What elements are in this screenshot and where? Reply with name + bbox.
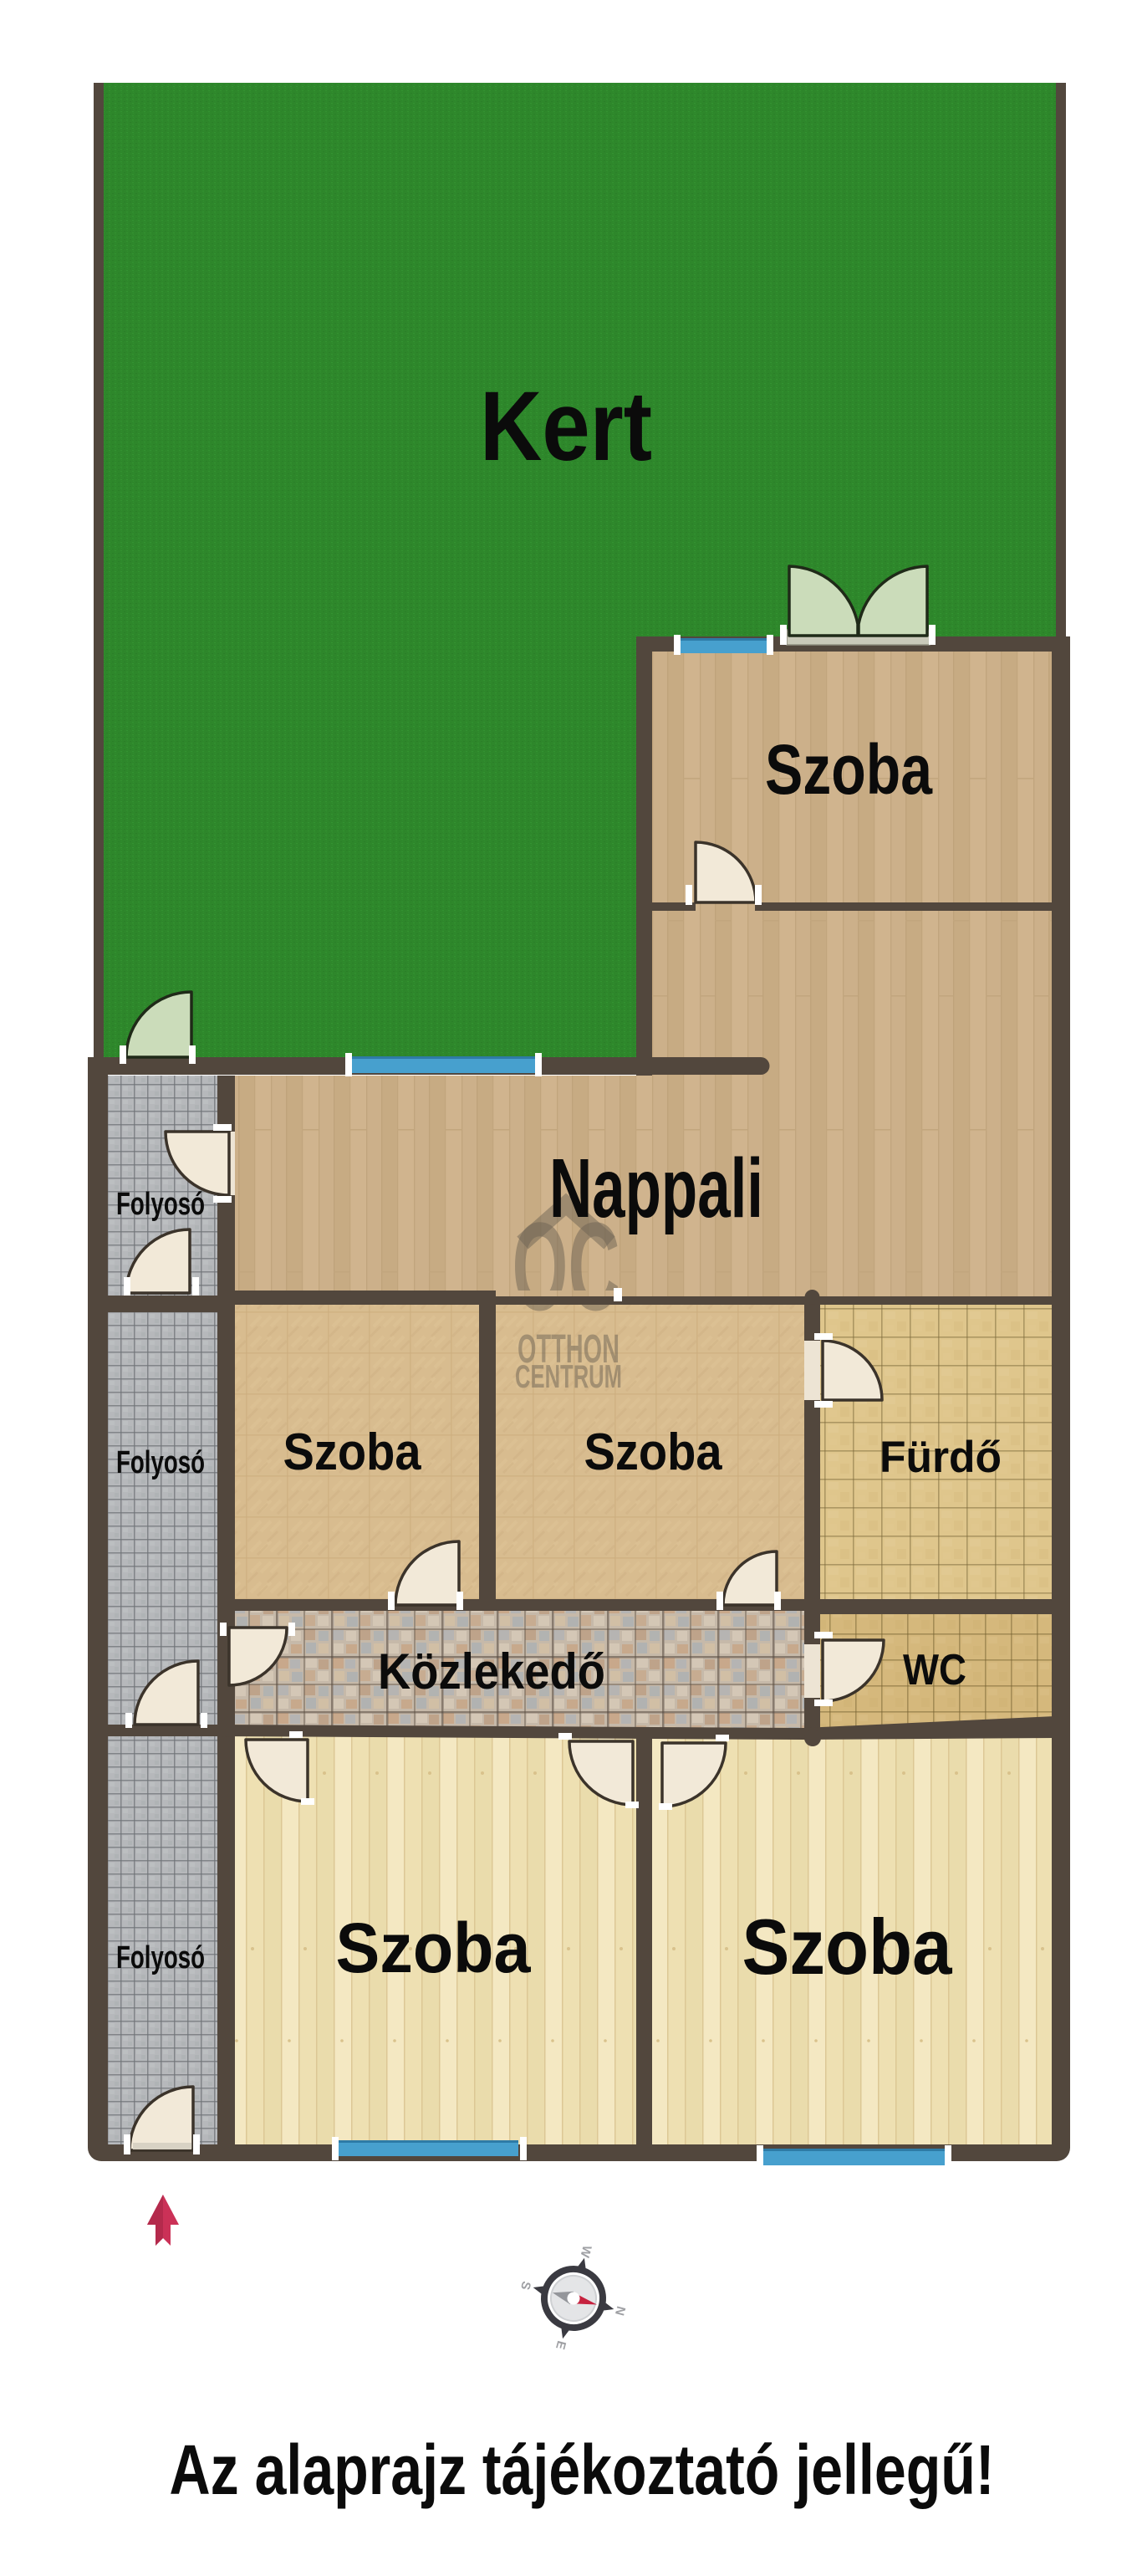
svg-text:N: N [612,2304,628,2317]
svg-text:Szoba: Szoba [584,1423,722,1481]
svg-text:Fürdő: Fürdő [880,1433,1002,1482]
svg-text:Nappali: Nappali [549,1142,763,1235]
svg-text:E: E [553,2339,568,2351]
svg-text:Közlekedő: Közlekedő [378,1643,605,1699]
svg-text:Folyosó: Folyosó [116,1445,205,1480]
svg-text:WC: WC [903,1646,966,1694]
svg-text:Szoba: Szoba [336,1909,532,1987]
svg-text:W: W [577,2244,594,2260]
svg-text:Folyosó: Folyosó [116,1940,205,1975]
svg-text:S: S [518,2280,533,2292]
svg-text:Az alaprajz tájékoztató jelleg: Az alaprajz tájékoztató jellegű! [170,2430,995,2509]
svg-text:Szoba: Szoba [742,1903,953,1991]
svg-text:Folyosó: Folyosó [116,1187,205,1222]
svg-text:Kert: Kert [480,371,652,482]
svg-text:Szoba: Szoba [765,730,933,809]
svg-text:CENTRUM: CENTRUM [515,1359,622,1395]
svg-text:Szoba: Szoba [283,1423,421,1481]
